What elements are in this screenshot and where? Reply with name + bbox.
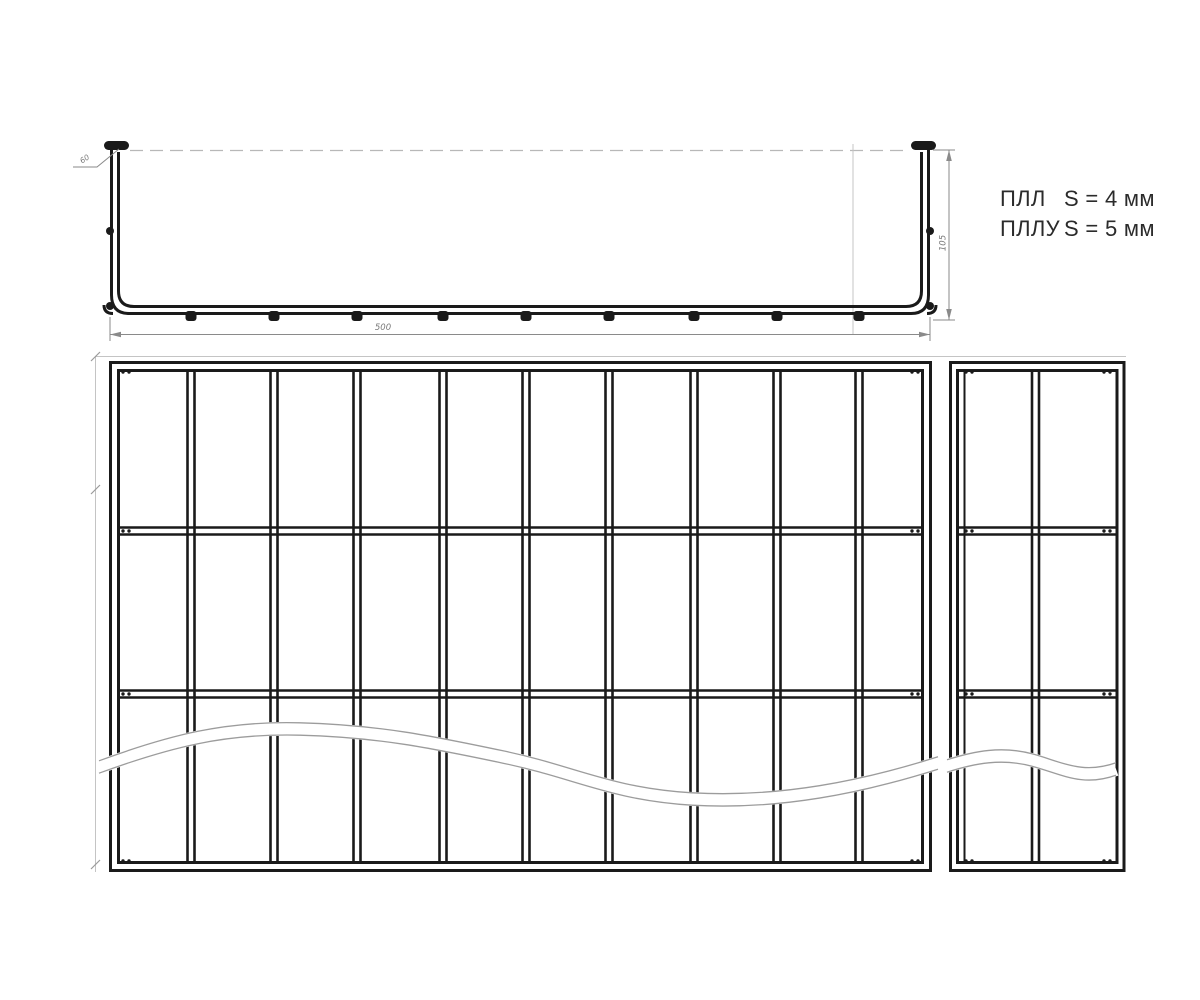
rivet-dot bbox=[1102, 370, 1105, 373]
arrowhead-down bbox=[946, 309, 952, 320]
dimension-right-height: 105 bbox=[933, 150, 955, 320]
rivet-dot bbox=[127, 692, 130, 695]
rivet-dot bbox=[970, 529, 973, 532]
technical-drawing-page: 105 500 60 bbox=[0, 0, 1200, 1000]
rivet-dot bbox=[121, 859, 124, 862]
rivet-dot bbox=[127, 529, 130, 532]
drawing-canvas: 105 500 60 bbox=[0, 0, 1200, 1000]
rivet-dot bbox=[1108, 859, 1111, 862]
spec-series-2: ПЛЛУ bbox=[1000, 214, 1064, 244]
spec-thickness-1: S = 4 мм bbox=[1064, 184, 1155, 214]
rivet-dot bbox=[1102, 529, 1105, 532]
rung-tab bbox=[269, 311, 280, 321]
rivet-bump-left bbox=[106, 302, 114, 310]
rivet-dot bbox=[121, 370, 124, 373]
plan-view-end bbox=[951, 363, 1125, 871]
arrowhead-left bbox=[110, 332, 121, 337]
arrowhead-right bbox=[919, 332, 930, 337]
corner-callout-value: 60 bbox=[78, 152, 91, 165]
rivet-dot bbox=[910, 859, 913, 862]
arrowhead-up bbox=[946, 150, 952, 161]
rivet-dot bbox=[127, 370, 130, 373]
rivet-bump-right bbox=[926, 227, 934, 235]
profile-inner-contour bbox=[119, 152, 922, 307]
rivet-dot bbox=[964, 370, 967, 373]
rivet-dot bbox=[121, 529, 124, 532]
side-view bbox=[104, 141, 936, 335]
rivet-dot bbox=[964, 529, 967, 532]
rung-tab bbox=[689, 311, 700, 321]
spec-line-2: ПЛЛУ S = 5 мм bbox=[1000, 214, 1155, 244]
rivet-bump-left bbox=[106, 227, 114, 235]
left-wall-lip bbox=[104, 141, 129, 150]
rung-tab bbox=[772, 311, 783, 321]
rivet-dot bbox=[1108, 529, 1111, 532]
rivet-dot bbox=[970, 692, 973, 695]
rivet-dot bbox=[916, 859, 919, 862]
rung-tab bbox=[438, 311, 449, 321]
spec-text: ПЛЛ S = 4 мм ПЛЛУ S = 5 мм bbox=[1000, 184, 1155, 244]
right-wall-lip bbox=[911, 141, 936, 150]
rivet-dot bbox=[1108, 692, 1111, 695]
rivet-dot bbox=[970, 859, 973, 862]
rivet-bump-right bbox=[926, 302, 934, 310]
rivet-dot bbox=[964, 692, 967, 695]
spec-line-1: ПЛЛ S = 4 мм bbox=[1000, 184, 1155, 214]
right-height-value: 105 bbox=[939, 235, 949, 251]
rivet-dot bbox=[916, 370, 919, 373]
rung-tab bbox=[186, 311, 197, 321]
rivet-dot bbox=[916, 692, 919, 695]
rivet-dot bbox=[970, 370, 973, 373]
spec-series-1: ПЛЛ bbox=[1000, 184, 1064, 214]
rivet-dot bbox=[910, 692, 913, 695]
rung-tab bbox=[352, 311, 363, 321]
rivet-dot bbox=[964, 859, 967, 862]
rivet-dot bbox=[1102, 859, 1105, 862]
rivet-dot bbox=[121, 692, 124, 695]
rivet-dot bbox=[127, 859, 130, 862]
profile-outer-contour bbox=[112, 147, 929, 314]
rivet-dot bbox=[916, 529, 919, 532]
dimension-bottom-width: 500 bbox=[110, 317, 930, 341]
rivet-dot bbox=[910, 529, 913, 532]
rivet-dot bbox=[1108, 370, 1111, 373]
rivet-dot bbox=[1102, 692, 1105, 695]
rung-tab bbox=[521, 311, 532, 321]
rung-tab bbox=[604, 311, 615, 321]
end-frame-outer bbox=[951, 363, 1125, 871]
spec-thickness-2: S = 5 мм bbox=[1064, 214, 1155, 244]
bottom-width-value: 500 bbox=[375, 323, 391, 333]
rivet-dot bbox=[910, 370, 913, 373]
rung-tab bbox=[854, 311, 865, 321]
